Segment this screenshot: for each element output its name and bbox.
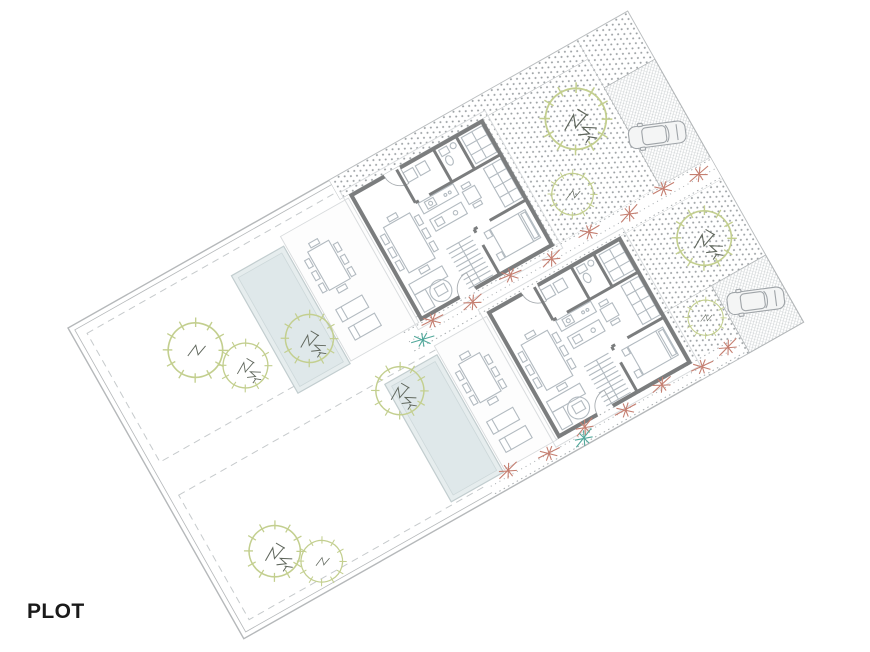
site-plan	[0, 0, 870, 652]
rotated-plan	[68, 11, 805, 641]
plot-label: PLOT	[27, 600, 85, 624]
page: PLOT	[0, 0, 870, 652]
